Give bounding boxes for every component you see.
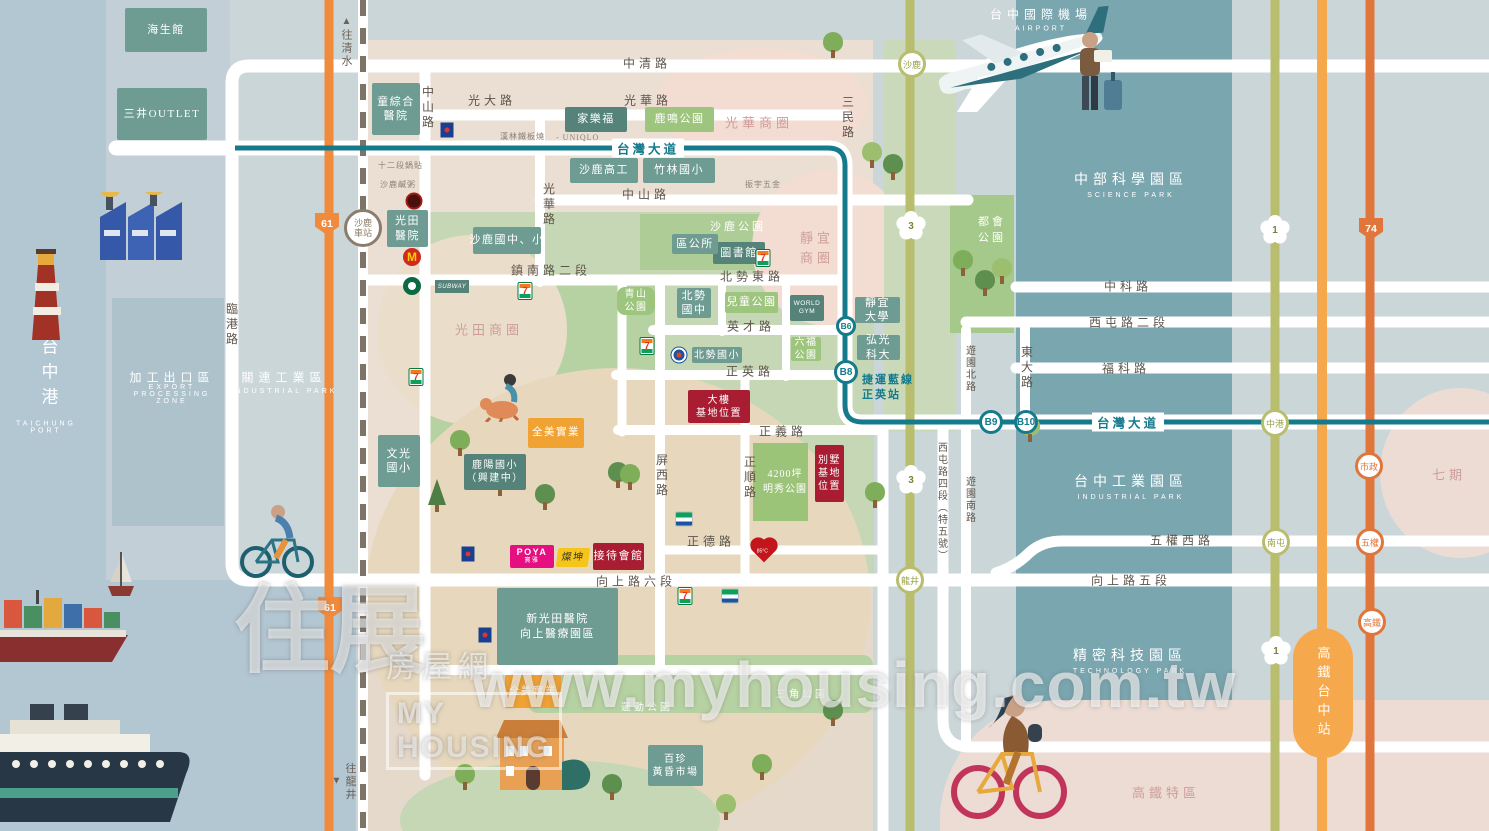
landmark-providence-university: 靜宜大學 xyxy=(855,297,900,323)
tree-icon xyxy=(455,764,475,790)
direction-south-longjing: 往龍井▼ xyxy=(330,758,358,807)
landmark-hungkuang-university: 弘光科大 xyxy=(857,335,900,360)
zone-linked-industrial: 關連工業區 xyxy=(241,369,326,386)
tree-icon xyxy=(883,154,903,180)
landmark-mingxiu-park: 4200坪明秀公園 xyxy=(763,465,807,495)
road-label-pingxi: 屏西路 xyxy=(654,454,671,499)
landmark-qingshan-park: 青山公園 xyxy=(617,287,655,315)
zone-tech-park: 精密科技園區TECHNOLOGY PARK xyxy=(1073,645,1187,675)
interchange-nantun: 南屯 xyxy=(1262,528,1290,556)
landmark-carrefour: 家樂福 xyxy=(565,107,627,132)
road-label-wuquan-west: 五權西路 xyxy=(1150,532,1214,549)
pine-tree-icon xyxy=(428,479,446,512)
hsr-taichung-station: 高鐵台中站 xyxy=(1293,628,1353,758)
cyclist-illustration xyxy=(236,502,316,580)
landmark-world-gym: WORLDGYM xyxy=(790,295,824,321)
tree-icon xyxy=(535,484,555,510)
case-site-b: 全美實業 xyxy=(505,675,561,708)
shop-label-snack: 沙鹿鹹粥 xyxy=(380,179,416,190)
landmark-liufu-park: 六福公園 xyxy=(791,337,821,361)
mrt-station-b6: B6 xyxy=(836,316,856,336)
pxmart-icon xyxy=(721,589,739,604)
road-label-lingang: 臨港路 xyxy=(224,303,241,348)
mrt-station-b10: B10 xyxy=(1014,410,1038,434)
site-marker-villa: 別墅基地位置 xyxy=(815,445,844,502)
subway-icon: SUBWAY xyxy=(435,280,469,293)
road-label-zhongshan-v: 中山路 xyxy=(420,86,437,131)
restaurant-round-logo-icon xyxy=(406,193,423,210)
highway-1-badge-north: 1 xyxy=(1265,220,1285,240)
container-ship-illustration xyxy=(0,590,140,665)
road-label-zhongshan-h: 中山路 xyxy=(622,186,670,203)
zone-taichung-port: 台中港 xyxy=(36,338,61,413)
shop-label-uniqlo: - UNIQLO xyxy=(556,133,599,142)
woman-cyclist-illustration xyxy=(948,688,1068,820)
tree-icon xyxy=(953,250,973,276)
site-marker-tower: 大樓基地位置 xyxy=(688,390,750,423)
tree-icon xyxy=(992,258,1012,284)
landmark-zhulin-elementary: 竹林國小 xyxy=(643,158,715,183)
tree-icon xyxy=(865,482,885,508)
zone-jingyi-biz: 靜宜商圈 xyxy=(800,229,834,268)
landmark-children-park: 兒童公園 xyxy=(725,292,778,313)
bank-logo-icon xyxy=(462,547,475,562)
tree-icon xyxy=(823,700,843,726)
landmark-luming-park: 鹿鳴公園 xyxy=(645,107,714,132)
landmark-shalu-vocational: 沙鹿高工 xyxy=(570,158,638,183)
zone-hsr-district: 高鐵特區 xyxy=(1132,783,1200,803)
highway-3-badge-south: 3 xyxy=(901,470,921,490)
shop-label-zhenyu: 振宇五金 xyxy=(745,179,781,190)
zone-metro-park: 都會公園 xyxy=(978,213,1006,245)
shop-label-hanlin: 漢林鐵板燒 xyxy=(500,131,545,142)
seven-eleven-icon: 7 xyxy=(678,587,693,605)
landmark-sanjiao-park: 三角公園 xyxy=(776,686,828,701)
interchange-shizheng: 市政 xyxy=(1355,452,1383,480)
rail-station-shalu: 沙鹿車站 xyxy=(344,209,382,247)
mcdonalds-icon: M xyxy=(403,248,421,266)
tree-icon xyxy=(752,754,772,780)
interchange-zhonggang: 中港 xyxy=(1261,409,1289,437)
zone-guangtian-biz: 光田商圈 xyxy=(455,320,523,340)
factory-illustration xyxy=(98,192,188,262)
landmark-beishi-elementary: 北勢國小 xyxy=(692,347,742,363)
road-label-zhennan: 鎮南路二段 xyxy=(511,262,591,279)
road-label-youyuan-north: 遊園北路 xyxy=(962,345,977,393)
landmark-baizhen-market: 百珍黃昏市場 xyxy=(648,745,703,786)
landmark-shalu-schools: 沙鹿國中、小 xyxy=(473,227,541,254)
landmark-xin-guangtian-hospital: 新光田醫院向上醫療園區 xyxy=(497,588,618,665)
zone-linked-industrial-en: INDUSTRIAL PARK xyxy=(231,385,338,395)
road-label-xiangshang5: 向上路五段 xyxy=(1091,572,1171,589)
seven-eleven-icon: 7 xyxy=(518,282,533,300)
landmark-beishi-junior: 北勢國中 xyxy=(677,288,711,318)
bank-logo-icon xyxy=(479,628,492,643)
illustrated-location-map: 中清路 光大路 光華路 中山路 台灣大道 中山路 光華路 鎮南路二段 北勢東路 … xyxy=(0,0,1489,831)
road-label-zhengyi: 正義路 xyxy=(759,423,807,440)
zone-taichung-port-en: TAICHUNG PORT xyxy=(11,418,81,435)
case-site-a: 全美實業 xyxy=(528,418,584,448)
landmark-luyang-elementary: 鹿陽國小（興建中） xyxy=(464,454,526,490)
landmark-sports-park: 運動公園 xyxy=(621,699,673,714)
mrt-station-b9: B9 xyxy=(979,410,1003,434)
starbucks-icon xyxy=(403,277,421,295)
road-label-youyuan-south: 遊園南路 xyxy=(962,476,977,524)
road-label-zhengying: 正英路 xyxy=(726,363,774,380)
tree-icon xyxy=(450,430,470,456)
traveler-illustration xyxy=(1068,28,1128,128)
tree-icon xyxy=(602,774,622,800)
shop-label-twelve: 十二段鍋貼 xyxy=(378,160,423,171)
landmark-tung-hospital: 童綜合醫院 xyxy=(372,83,420,135)
landmark-shalu-park: 沙鹿公園 xyxy=(710,218,766,234)
reception-center: 接待會館 xyxy=(593,543,644,570)
road-label-taiwan-blvd-west: 台灣大道 xyxy=(612,139,684,158)
mrt-station-b8: B8 xyxy=(834,360,858,384)
zone-industrial-park: 台中工業園區INDUSTRIAL PARK xyxy=(1074,471,1188,501)
tree-icon xyxy=(716,794,736,820)
road-label-xitun4: 西屯路四段（特五號） xyxy=(934,442,949,562)
interchange-gaotie: 高鐵 xyxy=(1358,608,1386,636)
road-label-fuke: 福科路 xyxy=(1102,360,1150,377)
landmark-mitsui-outlet: 三井OUTLET xyxy=(117,88,207,140)
tsann-kuen-store: 燦坤 xyxy=(556,548,591,567)
tree-icon xyxy=(823,32,843,58)
tree-icon xyxy=(862,142,882,168)
road-label-xiangshang6: 向上路六段 xyxy=(596,573,676,590)
interchange-longjing: 龍井 xyxy=(896,566,924,594)
electronics-store-logo-icon xyxy=(441,123,454,138)
lighthouse-illustration xyxy=(26,245,66,340)
cruise-ship-illustration xyxy=(0,692,200,831)
interchange-wuquan: 五權 xyxy=(1356,528,1384,556)
road-label-sanmin: 三民路 xyxy=(840,96,857,141)
road-label-yingcai: 英才路 xyxy=(727,318,775,335)
zone-qiqi: 七期 xyxy=(1432,465,1466,485)
highway-1-badge-south: 1 xyxy=(1266,641,1286,661)
zone-export-en: EXPORT PROCESSING ZONE xyxy=(127,381,217,405)
road-label-guanghua-h: 光華路 xyxy=(624,92,672,109)
landmark-wenguang-elementary: 文光國小 xyxy=(378,435,420,487)
tree-icon xyxy=(620,464,640,490)
poya-store: POYA寶雅 xyxy=(510,545,554,568)
road-label-guangda: 光大路 xyxy=(468,92,516,109)
road-label-taiwan-blvd-east: 台灣大道 xyxy=(1092,413,1164,432)
landmark-district-office: 區公所 xyxy=(672,234,718,254)
road-label-xitun2: 西屯路二段 xyxy=(1089,314,1169,331)
pxmart-icon xyxy=(675,512,693,527)
road-label-zhongqing: 中清路 xyxy=(623,55,671,72)
sailboat-illustration xyxy=(108,550,134,600)
highway-3-badge-north: 3 xyxy=(901,216,921,236)
road-label-zhengde: 正德路 xyxy=(687,533,735,550)
seven-eleven-icon: 7 xyxy=(640,337,655,355)
mrt-line-label: 捷運藍線正英站 xyxy=(862,373,914,404)
gas-station-logo-icon xyxy=(672,348,687,363)
seven-eleven-icon: 7 xyxy=(756,249,771,267)
road-label-dongda: 東大路 xyxy=(1019,346,1036,391)
zone-guanghua-biz: 光華商圈 xyxy=(725,113,793,133)
house-illustration xyxy=(492,710,592,795)
dog-walk-illustration xyxy=(476,372,534,422)
landmark-aquarium: 海生館 xyxy=(125,8,207,52)
road-label-guanghua-v: 光華路 xyxy=(541,183,558,228)
road-label-beishi-east: 北勢東路 xyxy=(720,268,784,285)
direction-north-qingshui: ▲往清水 xyxy=(338,16,354,68)
road-label-zhengshun: 正順路 xyxy=(742,456,759,501)
road-label-zhongke: 中科路 xyxy=(1104,278,1152,295)
landmark-guangtian-hospital: 光田醫院 xyxy=(387,210,428,247)
seven-eleven-icon: 7 xyxy=(409,368,424,386)
zone-science-park: 中部科學園區SCIENCE PARK xyxy=(1074,169,1188,199)
